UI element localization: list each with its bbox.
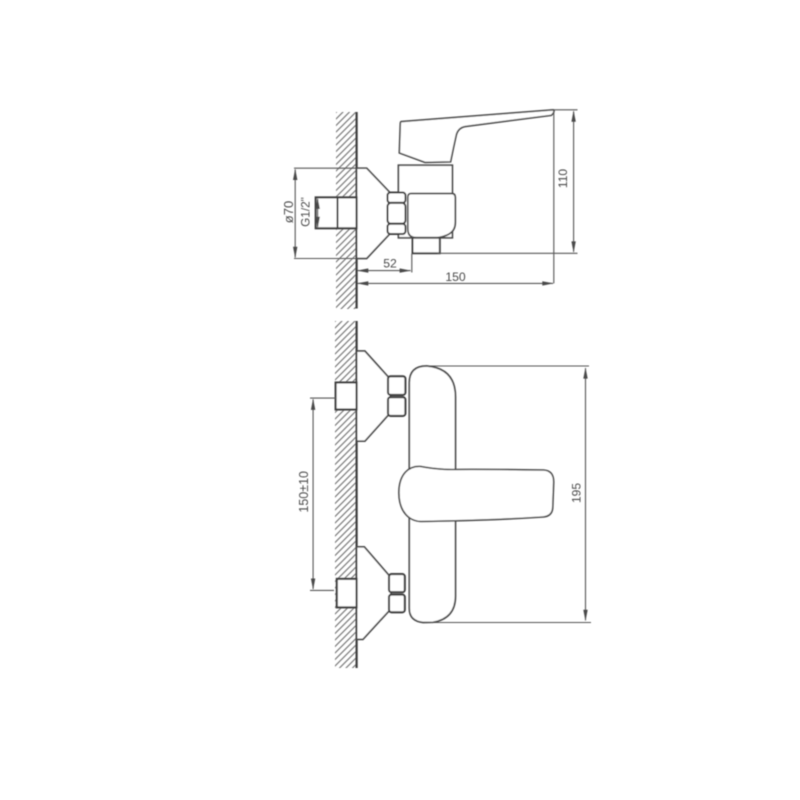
svg-text:150±10: 150±10 bbox=[297, 471, 311, 513]
svg-text:G1/2": G1/2" bbox=[299, 197, 313, 227]
svg-text:ø70: ø70 bbox=[281, 201, 296, 223]
svg-text:52: 52 bbox=[383, 256, 397, 270]
svg-text:195: 195 bbox=[570, 483, 584, 503]
svg-text:110: 110 bbox=[556, 169, 570, 188]
svg-text:150: 150 bbox=[445, 270, 466, 284]
